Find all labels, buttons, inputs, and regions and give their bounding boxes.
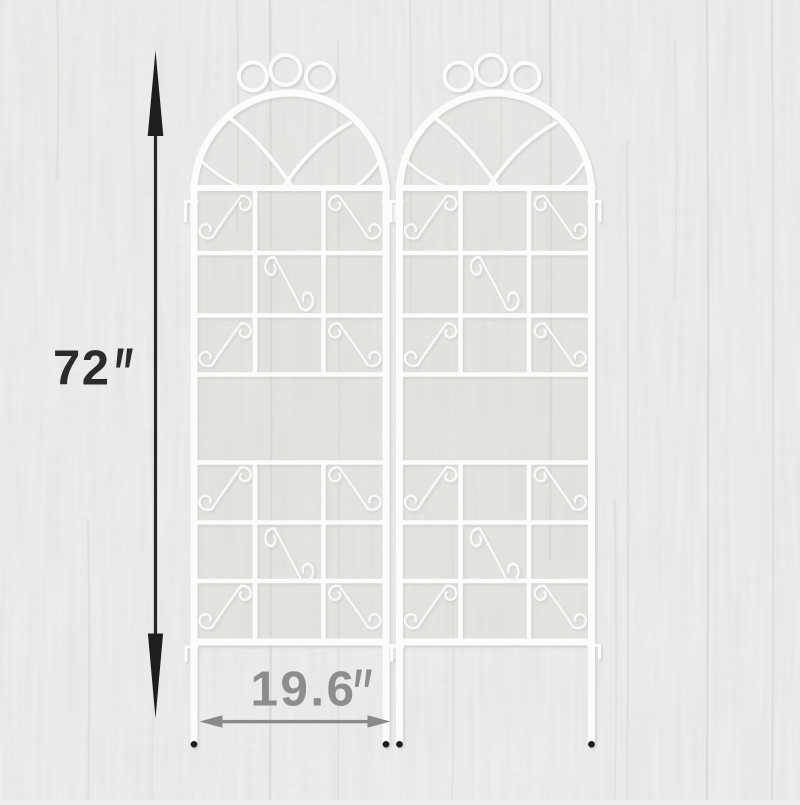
svg-text:19.6: 19.6 (251, 662, 357, 717)
svg-text:72: 72 (53, 342, 111, 396)
